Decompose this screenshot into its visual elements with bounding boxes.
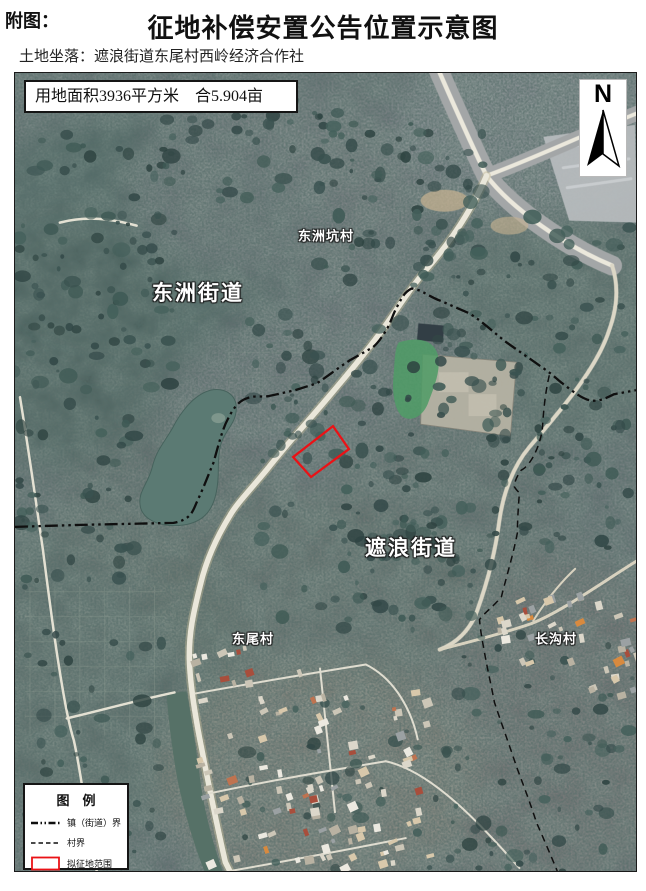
legend-title: 图 例 [25,790,127,809]
north-arrow: N [579,79,627,177]
map-canvas: 用地面积3936平方米 合5.904亩 N 东洲坑村 东洲街道 遮浪街道 东尾村… [14,72,637,872]
north-label: N [580,81,626,107]
satellite-imagery [15,73,636,871]
land-location-label: 土地坐落：遮浪街道东尾村西岭经济合作社 [19,45,304,66]
label-zhelang-subdistrict: 遮浪街道 [365,532,457,562]
legend-item-village-boundary: 村界 [30,836,127,849]
legend-label-town-boundary: 镇（街道）界 [67,816,121,829]
label-dongwei-village: 东尾村 [232,629,274,648]
parcel-outline-icon [30,856,62,871]
town-boundary-line-icon [30,819,62,827]
village-boundary-line-icon [30,839,62,847]
label-dongzhou-subdistrict: 东洲街道 [152,277,244,307]
legend: 图 例 镇（街道）界 村界 拟征地范围 [23,783,129,870]
legend-item-parcel: 拟征地范围 [30,856,127,871]
page: 附图： 征地补偿安置公告位置示意图 土地坐落：遮浪街道东尾村西岭经济合作社 [0,0,646,891]
label-dongzhoukeng-village: 东洲坑村 [298,226,354,245]
pond-island [211,413,225,423]
legend-label-village-boundary: 村界 [67,836,85,849]
area-note-box: 用地面积3936平方米 合5.904亩 [24,80,298,113]
legend-item-town-boundary: 镇（街道）界 [30,816,127,829]
label-changgou-village: 长沟村 [535,629,577,648]
area-note-text: 用地面积3936平方米 合5.904亩 [35,88,263,105]
legend-label-parcel: 拟征地范围 [67,857,112,870]
page-title: 征地补偿安置公告位置示意图 [0,8,646,45]
north-arrow-icon [585,107,621,169]
